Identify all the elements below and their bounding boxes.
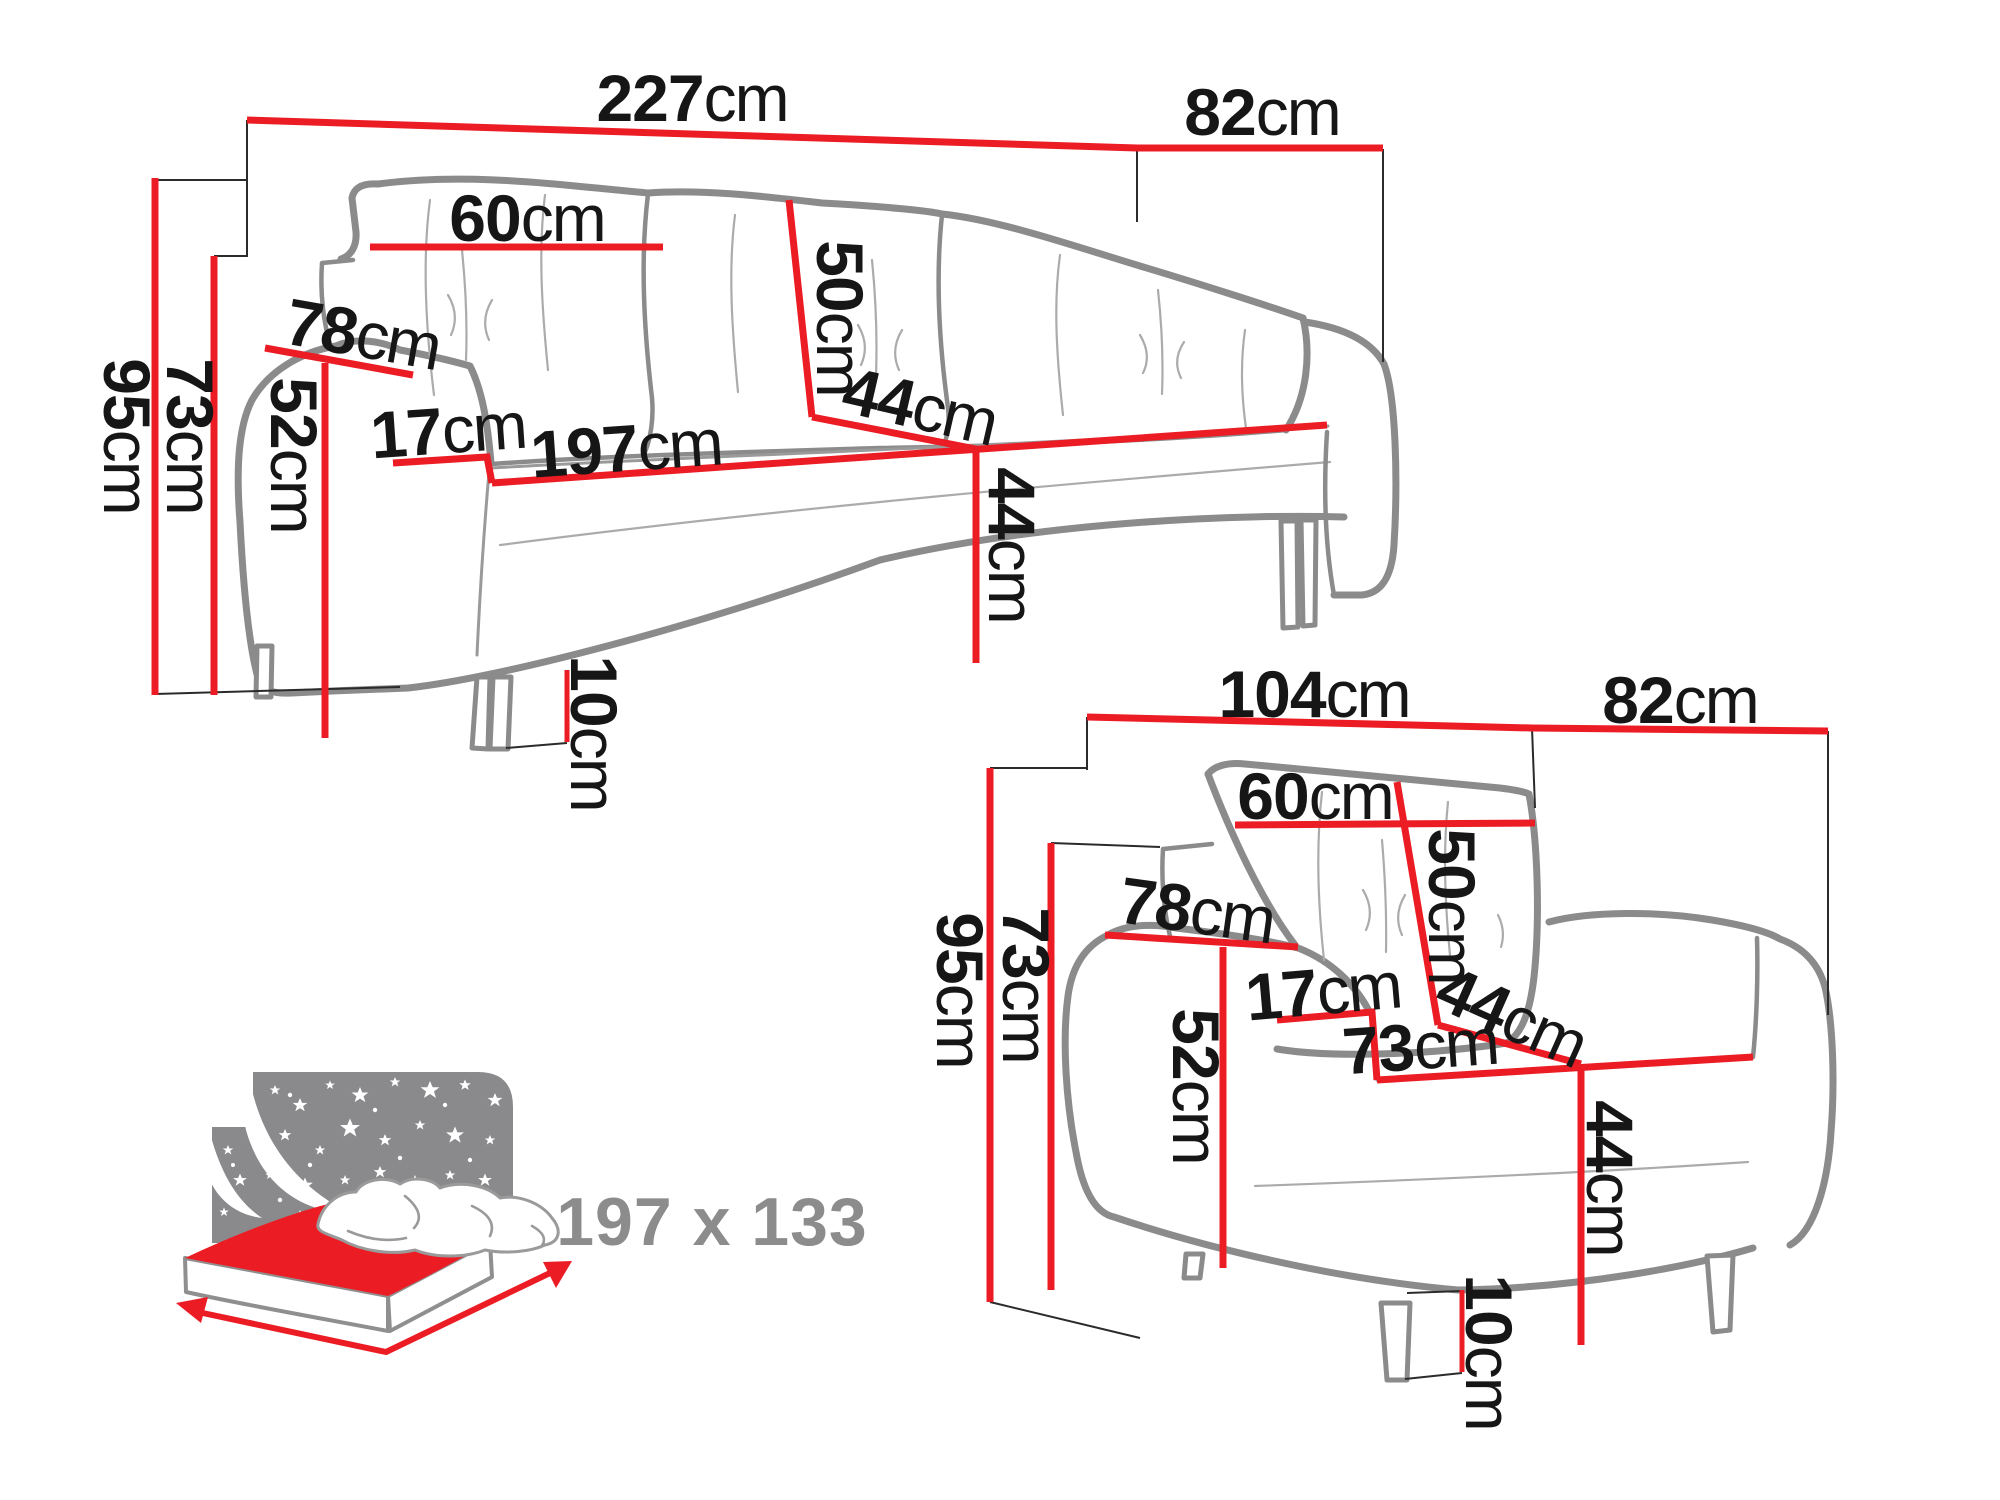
label-sofa-height: 95cm xyxy=(90,358,164,513)
armchair-back-height-top-extension xyxy=(1051,843,1160,847)
label-armchair-back-height: 73cm xyxy=(989,907,1063,1062)
label-sofa-seat-depth: 44cm xyxy=(836,352,1004,459)
label-sofa-armrest-height: 52cm xyxy=(257,377,331,532)
label-armchair-width: 104cm xyxy=(1218,657,1409,731)
sofa-right-leg-b xyxy=(1301,520,1316,626)
label-armchair-seat-height: 44cm xyxy=(1573,1100,1647,1255)
label-sofa-depth: 82cm xyxy=(1184,75,1339,149)
armchair-bottom-edge xyxy=(1114,1217,1753,1290)
armchair-left-armrest-outer xyxy=(1065,935,1114,1217)
armchair-dimension-labels: 104cm 82cm 95cm 73cm 60cm 50cm 44cm 78cm… xyxy=(923,657,1758,1430)
label-sofa-seat-height: 44cm xyxy=(975,467,1049,622)
star-dot xyxy=(398,1156,402,1160)
armchair-box-seam xyxy=(1255,1162,1748,1186)
arrowhead-left xyxy=(176,1297,208,1323)
sofa-armrest-front-contour xyxy=(477,472,489,655)
armchair-floor-extension xyxy=(990,1302,1140,1338)
label-armchair-armrest-height: 52cm xyxy=(1159,1008,1233,1163)
sleep-function-icon: 197 x 133 xyxy=(176,1070,868,1352)
sofa-right-leg-a xyxy=(1281,521,1298,628)
sofa-back-leg xyxy=(256,646,272,697)
sofa-right-armrest xyxy=(1305,322,1396,595)
star-dot xyxy=(443,1103,447,1107)
sofa-dimension-lines xyxy=(155,120,1383,742)
star-dot xyxy=(468,1158,472,1162)
label-armchair-seat-width: 73cm xyxy=(1340,1004,1500,1089)
sofa-bottom-edge xyxy=(292,516,1344,693)
star-dot xyxy=(231,1163,235,1167)
armchair-front-right-leg xyxy=(1707,1255,1733,1332)
diagram-svg: 227cm 82cm 95cm 73cm 60cm 50cm 44cm 78cm… xyxy=(0,0,2000,1500)
label-sofa-armrest-width: 17cm xyxy=(368,388,528,473)
armchair-drawing: 104cm 82cm 95cm 73cm 60cm 50cm 44cm 78cm… xyxy=(923,657,1833,1430)
armchair-right-armrest-inner xyxy=(1753,938,1757,1057)
furniture-dimension-diagram: 227cm 82cm 95cm 73cm 60cm 50cm 44cm 78cm… xyxy=(0,0,2000,1500)
sofa-back-left-edge xyxy=(341,198,356,259)
label-sofa-width: 227cm xyxy=(596,61,787,135)
star-dot xyxy=(288,1093,292,1097)
sofa-backrest-right-edge xyxy=(1286,318,1307,430)
label-armchair-height: 95cm xyxy=(923,912,997,1067)
star-dot xyxy=(308,1163,312,1167)
label-armchair-leg-height: 10cm xyxy=(1452,1274,1526,1429)
label-sofa-back-height: 73cm xyxy=(153,358,227,513)
sofa-front-leg-a xyxy=(472,677,490,749)
sofa-drawing: 227cm 82cm 95cm 73cm 60cm 50cm 44cm 78cm… xyxy=(90,61,1396,811)
bed-blanket xyxy=(318,1179,558,1256)
label-armchair-cushion-width: 60cm xyxy=(1237,759,1392,833)
label-bed-sleeping-area: 197 x 133 xyxy=(556,1184,868,1260)
label-sofa-cushion-width: 60cm xyxy=(449,181,604,255)
sofa-front-leg-b xyxy=(490,677,511,749)
star-dot xyxy=(278,1198,282,1202)
label-sofa-leg-height: 10cm xyxy=(557,655,631,810)
armchair-front-left-leg xyxy=(1381,1303,1410,1380)
star-dot xyxy=(373,1108,377,1112)
label-sofa-seat-width: 197cm xyxy=(528,404,724,491)
armchair-back-leg xyxy=(1184,1254,1203,1278)
label-armchair-depth: 82cm xyxy=(1602,663,1757,737)
label-sofa-armrest-length: 78cm xyxy=(280,284,446,384)
